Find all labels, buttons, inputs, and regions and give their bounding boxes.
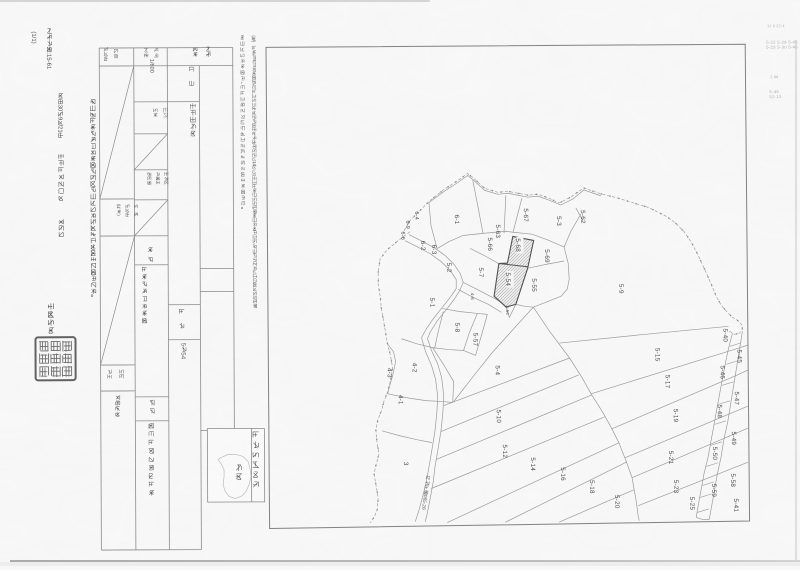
svg-text:5-3: 5-3: [555, 216, 562, 226]
svg-text:6-6: 6-6: [399, 231, 405, 240]
svg-text:1/600: 1/600: [148, 59, 154, 73]
svg-text:1: 1: [252, 174, 257, 177]
svg-text:1: 1: [57, 129, 63, 132]
svg-text:5-67: 5-67: [522, 208, 529, 222]
svg-text:5-58: 5-58: [729, 473, 736, 487]
svg-text:5-63: 5-63: [494, 225, 501, 239]
svg-text:4-1: 4-1: [397, 395, 404, 405]
svg-text:5-56: 5-56: [505, 306, 510, 316]
svg-text:5-1: 5-1: [428, 298, 435, 308]
svg-text:6-3: 6-3: [430, 245, 437, 255]
svg-text:5-45: 5-45: [736, 349, 743, 363]
svg-text:5-66: 5-66: [486, 238, 493, 252]
svg-text:0: 0: [56, 108, 62, 111]
svg-text:5-55: 5-55: [530, 278, 537, 292]
svg-text:6: 6: [420, 507, 426, 511]
svg-text:5-12: 5-12: [501, 444, 508, 458]
svg-text:11 0 22-4: 11 0 22-4: [767, 24, 785, 28]
svg-text:5-62: 5-62: [579, 210, 586, 224]
svg-text:5-23: 5-23: [672, 480, 679, 494]
svg-text:1: 1: [45, 66, 51, 70]
svg-text:5-59: 5-59: [710, 484, 717, 498]
svg-text:5-48: 5-48: [716, 405, 723, 419]
svg-text:5-17: 5-17: [664, 375, 671, 389]
svg-text:5-16: 5-16: [559, 467, 566, 481]
svg-text:5-47: 5-47: [733, 391, 740, 405]
svg-text:5-10: 5-10: [495, 410, 502, 424]
svg-text:52-13: 52-13: [769, 94, 782, 99]
svg-text:5-4: 5-4: [494, 365, 501, 375]
svg-text:): ): [251, 41, 256, 43]
svg-text:5-9: 5-9: [617, 284, 624, 294]
svg-text:5-8: 5-8: [453, 323, 460, 333]
svg-text:): ): [116, 214, 121, 216]
svg-text:3: 3: [402, 462, 409, 466]
svg-text:2 88: 2 88: [770, 75, 778, 79]
svg-text:5-21: 5-21: [667, 451, 674, 465]
svg-text:5-49: 5-49: [730, 431, 737, 445]
svg-text:): ): [30, 42, 36, 44]
svg-text:5-50: 5-50: [711, 447, 718, 461]
svg-text:5-20: 5-20: [613, 495, 620, 509]
svg-text:5-69: 5-69: [543, 249, 550, 263]
svg-text:5-25: 5-25: [688, 497, 695, 511]
svg-text:6-9: 6-9: [404, 220, 410, 229]
svg-text:5-23 5-30 5-46: 5-23 5-30 5-46: [766, 45, 798, 50]
svg-text:5-18: 5-18: [588, 480, 595, 494]
svg-text:5-7: 5-7: [477, 267, 484, 277]
svg-text:9: 9: [57, 117, 63, 120]
svg-text:4-3: 4-3: [386, 368, 393, 378]
svg-text:5: 5: [179, 343, 186, 347]
svg-text:5-19: 5-19: [672, 409, 679, 423]
svg-text:5-14: 5-14: [529, 457, 536, 471]
svg-text:4-6: 4-6: [470, 293, 475, 301]
svg-text:4: 4: [180, 356, 187, 360]
svg-text:6-2: 6-2: [419, 241, 426, 251]
svg-text:6-1: 6-1: [453, 215, 460, 225]
svg-text:(: (: [251, 35, 256, 37]
svg-text:5-41: 5-41: [732, 498, 739, 512]
svg-text:5-57: 5-57: [471, 333, 478, 347]
svg-text:5-2: 5-2: [445, 263, 452, 273]
svg-text:4-2: 4-2: [411, 363, 418, 373]
svg-text:5-15: 5-15: [654, 348, 661, 362]
svg-text:5-46: 5-46: [719, 366, 726, 380]
svg-text:5-54: 5-54: [504, 272, 511, 286]
svg-text:5-40: 5-40: [721, 329, 728, 343]
svg-text:6-4: 6-4: [413, 211, 419, 220]
svg-text:5-68: 5-68: [514, 238, 521, 252]
